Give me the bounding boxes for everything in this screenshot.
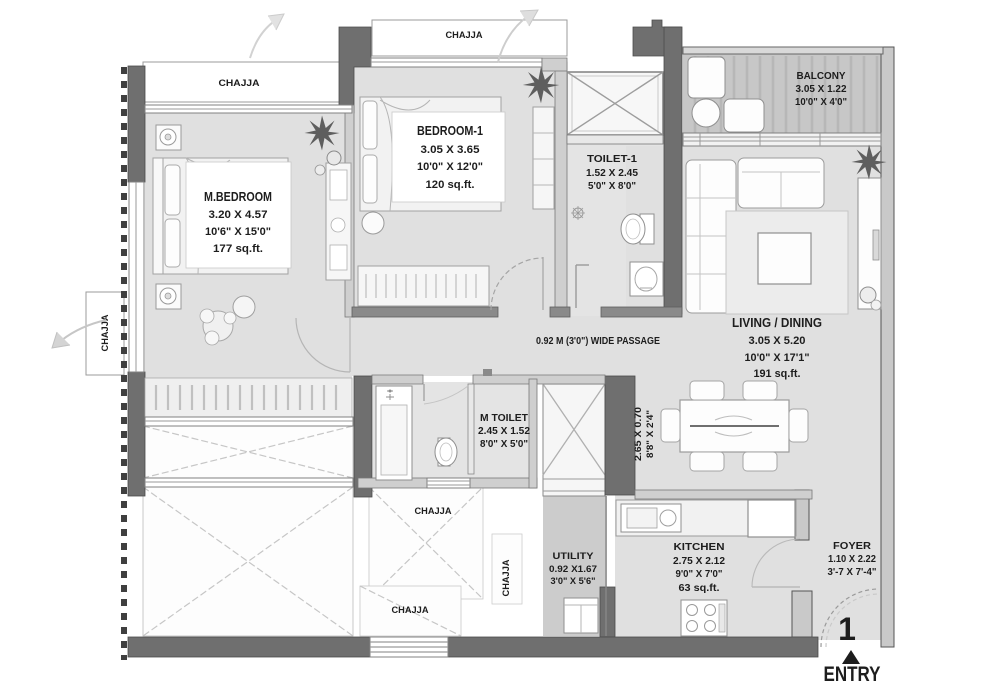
svg-text:0.92 M (3'0") WIDE PASSAGE: 0.92 M (3'0") WIDE PASSAGE [536,335,660,347]
svg-text:CHAJJA: CHAJJA [219,78,261,88]
svg-text:3'-7 X 7'-4": 3'-7 X 7'-4" [828,566,877,578]
svg-text:3.05 X 3.65: 3.05 X 3.65 [421,144,480,156]
svg-text:3.05 X 5.20: 3.05 X 5.20 [749,335,806,347]
svg-text:BEDROOM-1: BEDROOM-1 [417,124,483,138]
svg-text:8'8" X 2'4": 8'8" X 2'4" [645,410,655,458]
svg-text:0.92 X1.67: 0.92 X1.67 [549,564,597,574]
svg-text:1.52 X 2.45: 1.52 X 2.45 [586,167,638,179]
svg-text:10'0" X 17'1": 10'0" X 17'1" [745,352,810,364]
svg-text:TOILET-1: TOILET-1 [587,153,637,165]
svg-text:CHAJJA: CHAJJA [446,30,484,40]
svg-text:KITCHEN: KITCHEN [674,541,725,553]
svg-text:120 sq.ft.: 120 sq.ft. [426,179,475,191]
svg-text:63 sq.ft.: 63 sq.ft. [679,582,720,594]
svg-text:10'0" X 12'0": 10'0" X 12'0" [417,161,483,173]
svg-text:CHAJJA: CHAJJA [392,605,430,615]
svg-text:10'0" X 4'0": 10'0" X 4'0" [795,96,847,108]
svg-text:177 sq.ft.: 177 sq.ft. [213,243,263,255]
svg-text:CHAJJA: CHAJJA [501,559,511,597]
svg-text:2.65 X 0.70: 2.65 X 0.70 [633,407,643,461]
svg-text:BALCONY: BALCONY [797,70,846,82]
svg-text:1: 1 [838,611,856,647]
svg-text:3.05 X 1.22: 3.05 X 1.22 [796,83,847,95]
svg-text:5'0" X 8'0": 5'0" X 8'0" [588,180,636,192]
svg-text:3.20 X 4.57: 3.20 X 4.57 [209,209,268,221]
svg-text:UTILITY: UTILITY [553,551,594,561]
svg-text:191 sq.ft.: 191 sq.ft. [754,368,801,380]
svg-text:CHAJJA: CHAJJA [415,506,453,516]
svg-text:10'6" X 15'0": 10'6" X 15'0" [205,226,271,238]
svg-text:8'0" X 5'0": 8'0" X 5'0" [480,438,528,450]
svg-text:M.BEDROOM: M.BEDROOM [204,190,272,204]
svg-text:FOYER: FOYER [833,540,871,552]
svg-text:2.75 X 2.12: 2.75 X 2.12 [673,555,725,567]
svg-text:9'0" X 7'0": 9'0" X 7'0" [676,568,723,580]
svg-text:1.10 X 2.22: 1.10 X 2.22 [828,553,876,565]
svg-text:3'0" X 5'6": 3'0" X 5'6" [551,576,596,586]
svg-text:ENTRY: ENTRY [824,663,881,686]
svg-text:M TOILET: M TOILET [480,412,529,424]
svg-text:2.45 X 1.52: 2.45 X 1.52 [478,425,530,437]
svg-text:LIVING / DINING: LIVING / DINING [732,316,822,330]
